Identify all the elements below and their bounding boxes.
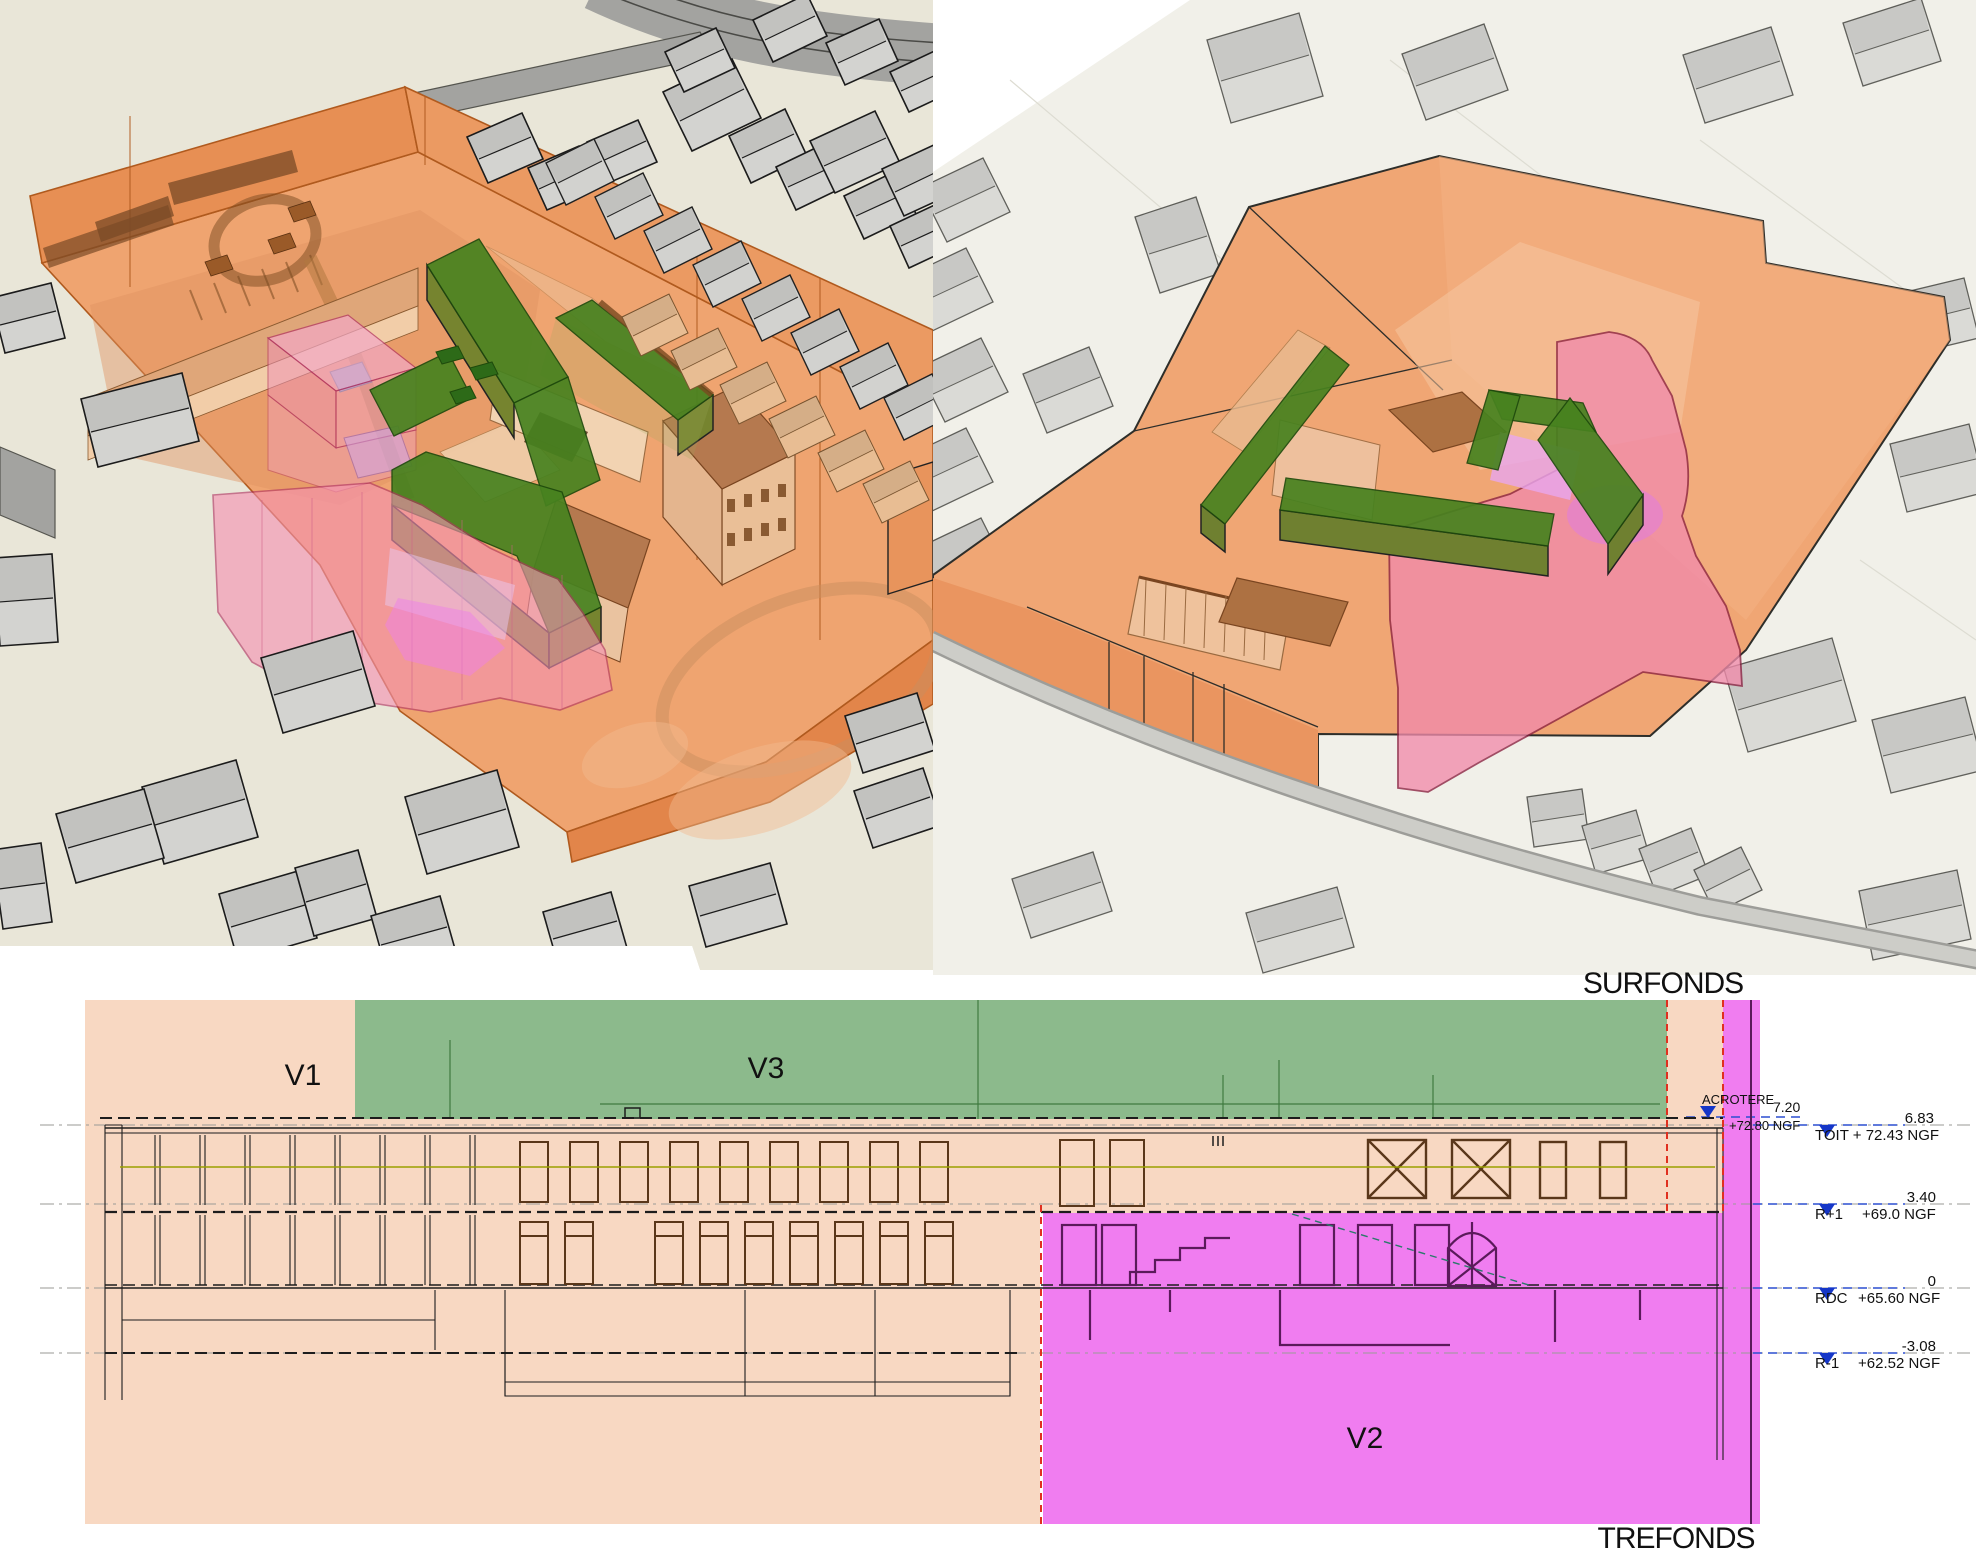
svg-text:SURFONDS: SURFONDS [1583,967,1743,1000]
svg-text:V1: V1 [285,1059,322,1092]
svg-text:3.40: 3.40 [1907,1189,1936,1206]
svg-text:-3.08: -3.08 [1902,1338,1936,1355]
svg-text:+69.0 NGF: +69.0 NGF [1862,1206,1936,1223]
svg-text:+65.60 NGF: +65.60 NGF [1858,1290,1940,1307]
svg-text:+72.80 NGF: +72.80 NGF [1729,1118,1800,1133]
svg-text:0: 0 [1928,1273,1936,1290]
svg-text:+62.52 NGF: +62.52 NGF [1858,1355,1940,1372]
svg-text:ACROTERE: ACROTERE [1702,1092,1775,1107]
svg-text:R-1: R-1 [1815,1355,1839,1372]
svg-text:RDC: RDC [1815,1290,1848,1307]
svg-text:6.83: 6.83 [1905,1110,1934,1127]
svg-text:V3: V3 [748,1052,785,1085]
svg-text:7.20: 7.20 [1773,1099,1800,1115]
svg-text:R+1: R+1 [1815,1206,1843,1223]
svg-text:V2: V2 [1347,1422,1384,1455]
svg-text:TOIT + 72.43 NGF: TOIT + 72.43 NGF [1815,1127,1939,1144]
svg-text:TREFONDS: TREFONDS [1598,1522,1755,1551]
